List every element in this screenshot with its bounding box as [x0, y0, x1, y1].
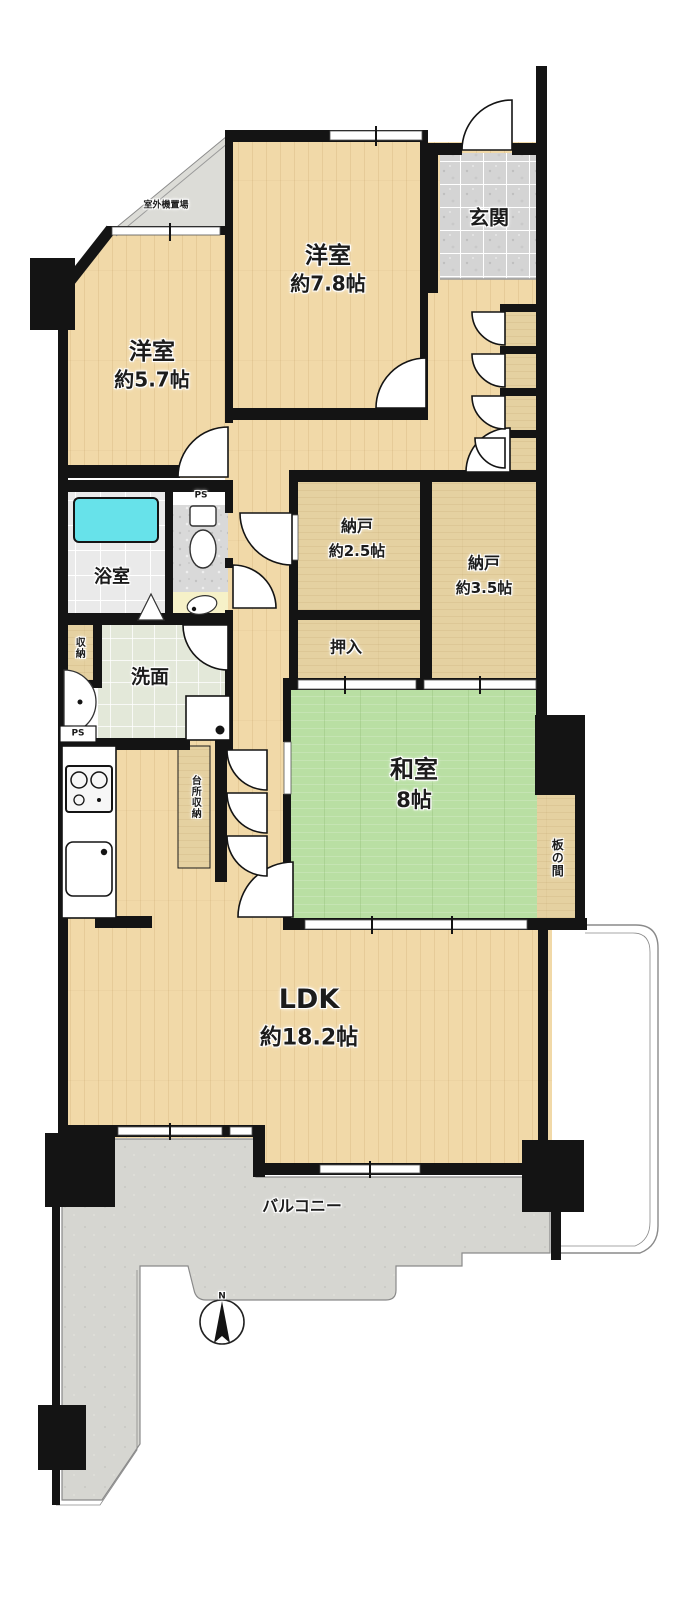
bathtub-icon — [74, 498, 158, 542]
kitchen-sink-icon — [66, 842, 112, 896]
small-storage-label: 収納 — [73, 637, 84, 659]
storage-room-2-label: 納戸 — [468, 556, 500, 573]
outdoor-unit-area-label: 室外機置場 — [143, 201, 188, 210]
ldk-label: LDK — [279, 986, 340, 1014]
kitchen-storage-label: 台所収納 — [189, 775, 200, 819]
japanese-room-size: 8帖 — [396, 789, 432, 811]
washing-machine-icon — [186, 696, 230, 740]
western-room-1-size: 約7.8帖 — [290, 274, 365, 295]
japanese-room-label: 和室 — [390, 757, 438, 782]
entrance-door-icon — [462, 100, 512, 150]
balcony-floor — [62, 1139, 550, 1500]
ldk-size: 約18.2帖 — [260, 1026, 358, 1049]
pipe-space-kitchen-label: PS — [71, 729, 84, 738]
storage-room-1-label: 納戸 — [341, 519, 373, 536]
storage-room-2-size: 約3.5帖 — [456, 581, 513, 597]
western-room-2-label: 洋室 — [129, 340, 175, 364]
kitchen-counter — [62, 746, 116, 918]
western-room-1-label: 洋室 — [305, 244, 351, 268]
wooden-floor-area-label: 板の間 — [551, 839, 564, 878]
washing-machine-dial — [216, 726, 225, 735]
compass-icon — [200, 1300, 244, 1344]
toilet-icon — [190, 506, 216, 568]
pipe-space-toilet-label: PS — [194, 491, 207, 500]
washroom-label: 洗面 — [131, 668, 169, 688]
floorplan-drawing — [0, 0, 696, 1600]
compass-north-label: N — [218, 1292, 226, 1301]
stove-icon — [66, 766, 112, 812]
balcony-label: バルコニー — [262, 1199, 342, 1216]
oshiire-label: 押入 — [330, 640, 362, 657]
floorplan: 洋室 約7.8帖 洋室 約5.7帖 玄関 室外機置場 納戸 約2.5帖 納戸 約… — [0, 0, 696, 1600]
outdoor-unit-area — [112, 136, 227, 231]
western-room-2-size: 約5.7帖 — [114, 370, 189, 391]
bathroom-label: 浴室 — [94, 569, 130, 588]
entrance-label: 玄関 — [469, 208, 509, 229]
storage-room-1-size: 約2.5帖 — [329, 544, 386, 560]
